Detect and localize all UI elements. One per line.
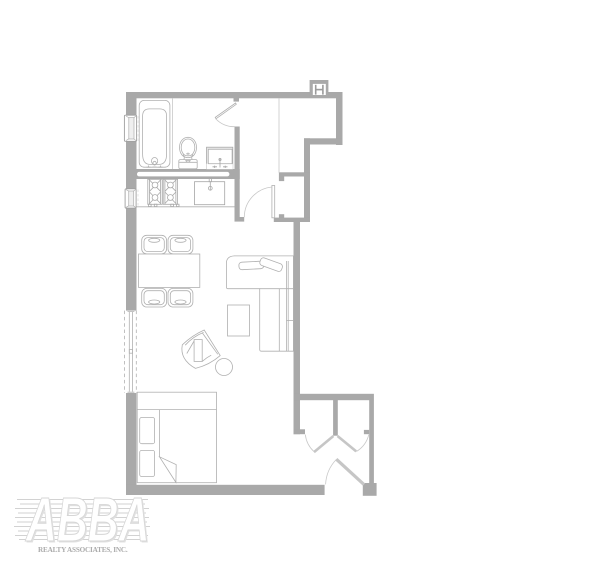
svg-text:ABBA: ABBA bbox=[24, 486, 149, 555]
svg-text:REALTY ASSOCIATES, INC.: REALTY ASSOCIATES, INC. bbox=[38, 546, 128, 554]
